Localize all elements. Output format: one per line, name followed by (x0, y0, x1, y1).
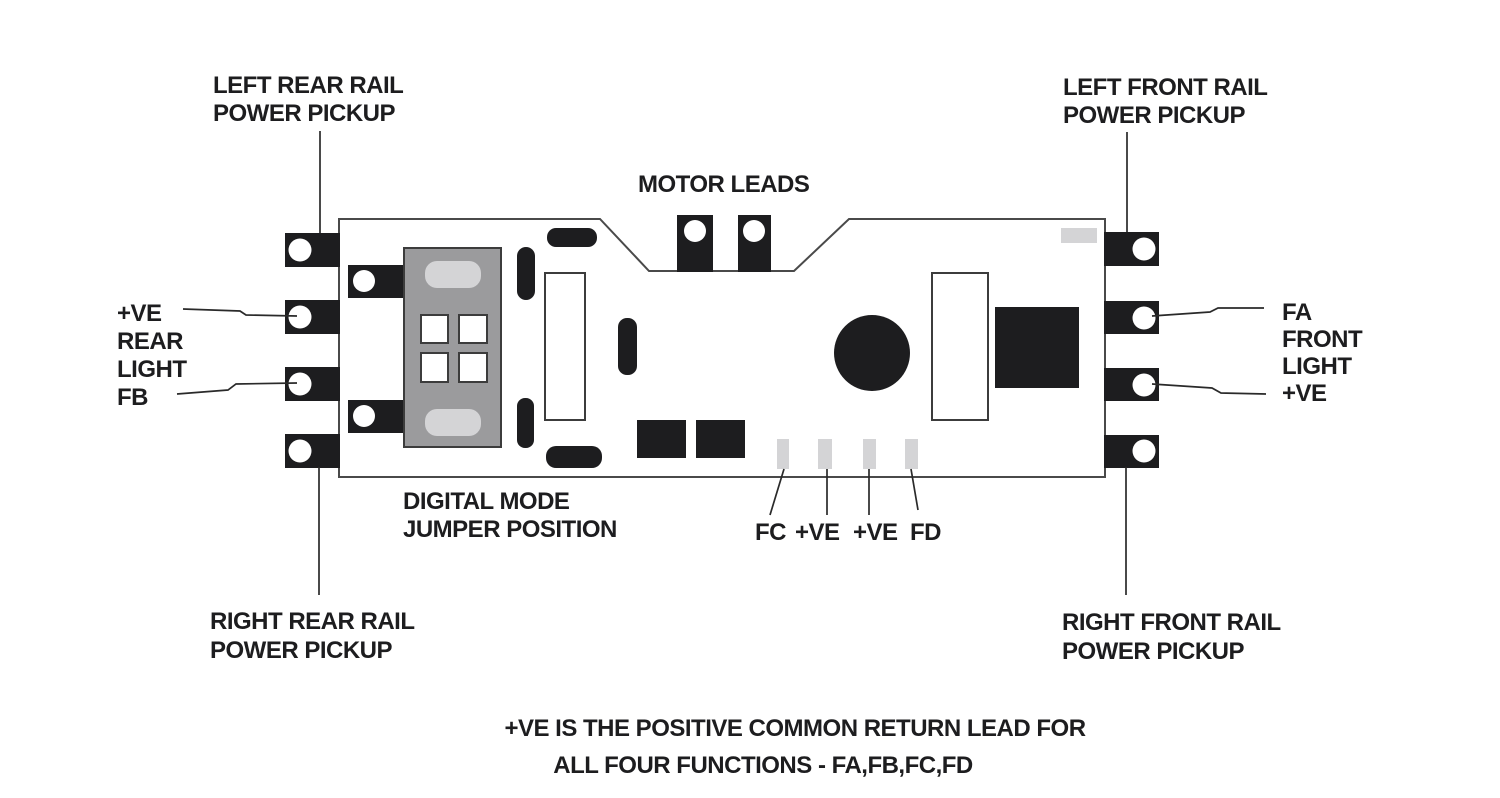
label-ve2: +VE (853, 519, 898, 546)
label-rear-light-fb: FB (117, 384, 148, 411)
label-front-light-ve: +VE (1282, 380, 1327, 407)
function-pad-ve2 (863, 439, 876, 469)
label-front-light-light: LIGHT (1282, 353, 1352, 380)
pickup-hole (289, 306, 312, 329)
label-digital-mode-line1: DIGITAL MODE (403, 488, 570, 515)
smd-pill-middle-vertical (618, 318, 637, 375)
label-left-front-rail-line2: POWER PICKUP (1063, 102, 1246, 129)
pickup-hole (1133, 374, 1156, 397)
label-fd: FD (910, 519, 941, 546)
ic-chip (995, 307, 1079, 388)
smd-pill-lower-vertical (517, 398, 534, 448)
label-left-front-rail-line1: LEFT FRONT RAIL (1063, 74, 1267, 101)
jumper-contact-top (425, 261, 481, 288)
label-rear-light-light: LIGHT (117, 356, 187, 383)
component-outline-left (545, 273, 585, 420)
right-pickup-tabs (1104, 232, 1159, 468)
jumper-pin-3 (421, 353, 448, 382)
leader-fa (1152, 308, 1264, 316)
pickup-hole (289, 440, 312, 463)
smd-chip-2 (696, 420, 745, 458)
left-pickup-tabs (285, 233, 340, 468)
pickup-hole (289, 373, 312, 396)
jumper-pin-4 (459, 353, 487, 382)
smd-pill-upper-vertical (517, 247, 535, 300)
function-pad-ve1 (818, 439, 832, 469)
label-right-front-rail-line2: POWER PICKUP (1062, 638, 1245, 665)
round-component (834, 315, 910, 391)
smd-chip-1 (637, 420, 686, 458)
label-digital-mode-line2: JUMPER POSITION (403, 516, 617, 543)
leader-ve-front (1152, 384, 1266, 394)
motor-lead-hole (743, 220, 765, 242)
label-left-rear-rail-line2: POWER PICKUP (213, 100, 396, 127)
pickup-hole (1133, 238, 1156, 261)
smd-pill-bottom-horizontal (546, 446, 602, 468)
label-front-light-fa: FA (1282, 299, 1312, 326)
pickup-hole (1133, 440, 1156, 463)
jumper-pin-1 (421, 315, 448, 343)
solder-hole (353, 270, 375, 292)
component-outline-right (932, 273, 988, 420)
label-right-rear-rail-line2: POWER PICKUP (210, 637, 393, 664)
label-rear-light-rear: REAR (117, 328, 183, 355)
function-pad-fd (905, 439, 918, 469)
pickup-hole (1133, 307, 1156, 330)
label-motor-leads: MOTOR LEADS (638, 171, 810, 198)
footnote-line2: ALL FOUR FUNCTIONS - FA,FB,FC,FD (553, 752, 973, 779)
jumper-contact-bottom (425, 409, 481, 436)
label-ve1: +VE (795, 519, 840, 546)
label-rear-light-ve: +VE (117, 300, 162, 327)
digital-jumper-block (404, 248, 501, 447)
footnote-line1: +VE IS THE POSITIVE COMMON RETURN LEAD F… (504, 715, 1085, 742)
leader-fb (177, 383, 297, 394)
jumper-pin-2 (459, 315, 487, 343)
circuit-board-diagram: LEFT REAR RAIL POWER PICKUP LEFT FRONT R… (0, 0, 1500, 798)
smd-pill-top-horizontal (547, 228, 597, 247)
function-pad-fc (777, 439, 789, 469)
label-right-rear-rail-line1: RIGHT REAR RAIL (210, 608, 415, 635)
motor-lead-tabs (677, 215, 771, 272)
gray-chip-top-right (1061, 228, 1097, 243)
label-right-front-rail-line1: RIGHT FRONT RAIL (1062, 609, 1281, 636)
label-fc: FC (755, 519, 786, 546)
diagram-canvas: LEFT REAR RAIL POWER PICKUP LEFT FRONT R… (0, 0, 1500, 798)
label-front-light-front: FRONT (1282, 326, 1363, 353)
motor-lead-hole (684, 220, 706, 242)
pickup-hole (289, 239, 312, 262)
label-left-rear-rail-line1: LEFT REAR RAIL (213, 72, 403, 99)
leader-ve-rear (183, 309, 297, 316)
solder-hole (353, 405, 375, 427)
